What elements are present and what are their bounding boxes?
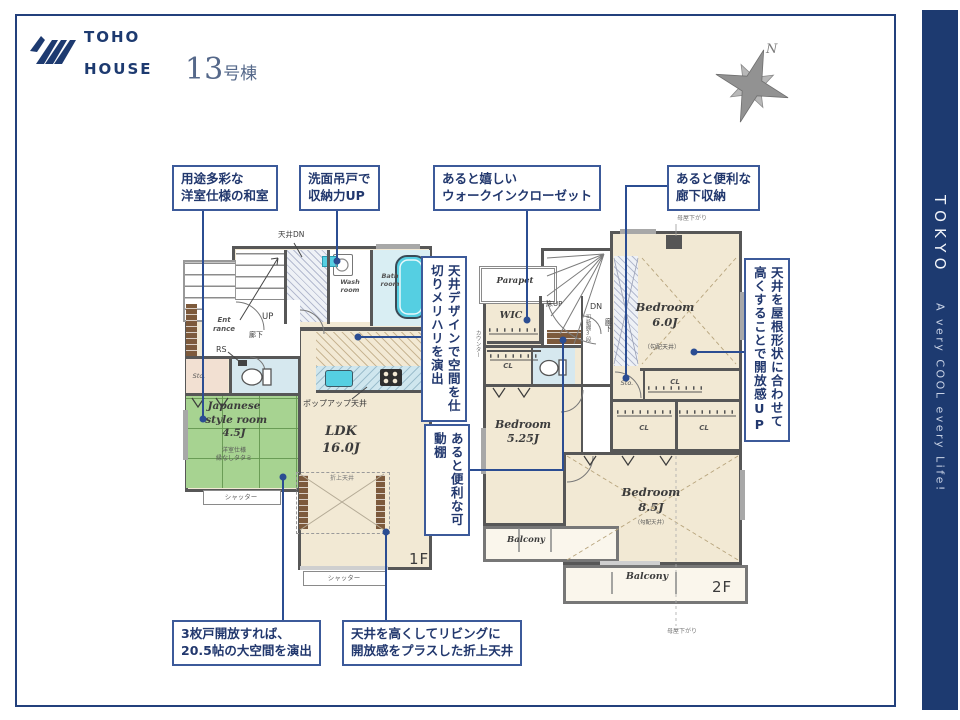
balcony-left-label: Balcony bbox=[507, 535, 545, 546]
ceiling-dn-label: 天井DN bbox=[278, 230, 304, 239]
f2-hall-label: 廊下 bbox=[604, 318, 612, 332]
rs-label: RS bbox=[216, 345, 227, 355]
bed6-note: （勾配天井） bbox=[644, 344, 680, 352]
plan-linework bbox=[0, 0, 960, 720]
bath-room-label: Bath room bbox=[381, 272, 400, 288]
moya-bottom-note: 母屋下がり bbox=[667, 628, 697, 636]
popup-ceiling-label: ポップアップ天井 bbox=[303, 399, 367, 409]
dn-label: DN bbox=[590, 302, 602, 312]
tatami-room-label: Japanese -style room4.5J bbox=[201, 400, 267, 441]
bed8-label: Bedroom8.5J bbox=[622, 485, 681, 515]
bed8-note: （勾配天井） bbox=[634, 520, 667, 527]
wash-room-label: Wash room bbox=[340, 278, 360, 294]
callout-movable-shelf: あると便利な可動棚 bbox=[424, 424, 470, 536]
floor1-tag: 1F bbox=[409, 550, 429, 568]
moya-top-note: 母屋下がり bbox=[677, 215, 707, 223]
cl-label-a: CL bbox=[670, 378, 680, 387]
callout-sloped-ceiling: 天井を屋根形状に合わせて高くすることで開放感UP bbox=[744, 258, 790, 442]
entrance-label: Ent rance bbox=[213, 316, 235, 334]
shelf-note-label: 可動棚3段 bbox=[584, 314, 591, 342]
ldk-label: LDK16.0J bbox=[322, 424, 360, 458]
shutter-label-west: シャッター bbox=[225, 493, 258, 501]
tatami-note: 洋室仕様 縁なしタタミ bbox=[216, 447, 252, 462]
wic-label: WIC bbox=[500, 310, 523, 322]
cl-label-d: CL bbox=[503, 362, 513, 371]
shutter-label-south: シャッター bbox=[328, 574, 361, 582]
bed6-label: Bedroom6.0J bbox=[636, 300, 695, 330]
callout-three-doors: 3枚戸開放すれば、 20.5帖の大空間を演出 bbox=[172, 620, 321, 666]
flyer-page: TOHO HOUSE 13号棟 N TOKYO A very COOL ever… bbox=[0, 0, 960, 720]
floor2-tag: 2F bbox=[712, 578, 732, 596]
callout-hall-storage: あると便利な 廊下収納 bbox=[667, 165, 760, 211]
callout-wash-cabinet: 洗面吊戸で 収納力UP bbox=[299, 165, 380, 211]
floor-up-label: 床UP bbox=[546, 300, 562, 308]
up-label: UP bbox=[262, 312, 273, 322]
callout-wic: あると嬉しい ウォークインクローゼット bbox=[433, 165, 601, 211]
bed5-label: Bedroom5.25J bbox=[495, 418, 551, 447]
balcony-south-label: Balcony bbox=[626, 571, 668, 583]
callout-coved-ceiling: 天井を高くしてリビングに 開放感をプラスした折上天井 bbox=[342, 620, 522, 666]
counter-label: カウンター bbox=[474, 330, 481, 358]
oriage-label: 折上天井 bbox=[330, 475, 354, 483]
cl-label-b: CL bbox=[639, 424, 649, 433]
f1-hall-label: 廊下 bbox=[249, 331, 263, 339]
callout-ceiling-design: 天井デザインで空間を仕切りメリハリを演出 bbox=[421, 256, 467, 422]
cl-label-c: CL bbox=[699, 424, 709, 433]
callout-tatami: 用途多彩な 洋室仕様の和室 bbox=[172, 165, 278, 211]
